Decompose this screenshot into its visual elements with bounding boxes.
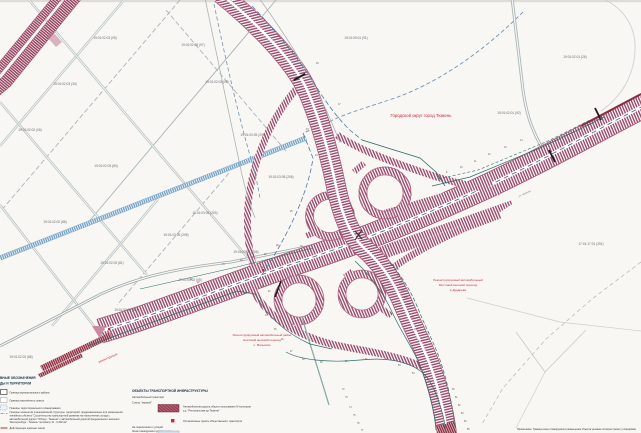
svg-text:19:01:02:02 (06): 19:01:02:02 (06): [18, 128, 41, 132]
svg-text:мостовой высокий переход: мостовой высокий переход: [243, 338, 281, 342]
svg-text:19:01:09:01 (91): 19:01:09:01 (91): [344, 36, 367, 40]
svg-text:Границы элементов планировочно: Границы элементов планировочной структур…: [10, 410, 124, 414]
svg-text:17:01:17:01 (251): 17:01:17:01 (251): [578, 242, 603, 246]
svg-text:19:01:02:03 (84): 19:01:02:03 (84): [94, 164, 117, 168]
svg-text:На пересечении с улицей: На пересечении с улицей: [132, 425, 163, 429]
svg-text:Городской округ город Тюмень: Городской округ город Тюмень: [390, 113, 452, 118]
svg-text:19:01:02:03 (34): 19:01:02:03 (34): [53, 82, 76, 86]
svg-text:Граница муниципального района: Граница муниципального района: [10, 391, 50, 395]
svg-text:Остановочные пункты общественн: Остановочные пункты общественного трансп…: [183, 419, 243, 423]
svg-text:Реконструируемый автомобильный: Реконструируемый автомобильный район: [233, 333, 292, 337]
svg-text:Действующие красные линии: Действующие красные линии: [10, 426, 46, 430]
svg-text:Граница населённого пункта: Граница населённого пункта: [10, 399, 45, 403]
svg-text:ДЫ И ТЕРРИТОРИИ: ДЫ И ТЕРРИТОРИИ: [0, 382, 32, 386]
svg-text:Статус "первый": Статус "первый": [132, 400, 152, 404]
svg-text:автомобильной дороги "Обход г.: автомобильной дороги "Обход г. Тюмени" с…: [10, 417, 120, 421]
svg-text:линейного объекта "Строительст: линейного объекта "Строительство транспо…: [10, 413, 111, 417]
svg-text:19:01:02:01 (92): 19:01:02:01 (92): [497, 111, 520, 115]
svg-text:19:01:02:03 (09): 19:01:02:03 (09): [93, 36, 116, 40]
svg-text:Автомобильный транспорт: Автомобильный транспорт: [132, 395, 165, 399]
svg-text:в Дударева: в Дударева: [450, 288, 466, 292]
svg-text:19:01:02:03 (08): 19:01:02:03 (08): [205, 80, 228, 84]
svg-text:ВНЫЕ ОБОЗНАЧЕНИЯ: ВНЫЕ ОБОЗНАЧЕНИЯ: [0, 376, 36, 380]
svg-text:19:01:02:02 (86): 19:01:02:02 (86): [9, 355, 32, 359]
svg-text:Границы территориального плани: Границы территориального планирования: [10, 406, 62, 410]
svg-text:19:01:02:01 (26): 19:01:02:01 (26): [563, 55, 586, 59]
svg-text:Примечание: Граница зоны плани: Примечание: Граница зоны планируемого ра…: [517, 428, 637, 431]
svg-text:19:01:03:05 (204): 19:01:03:05 (204): [192, 211, 217, 215]
svg-text:19:01:02:03 (85): 19:01:02:03 (85): [114, 308, 137, 312]
svg-text:19:01:03:05 (206): 19:01:03:05 (206): [268, 175, 293, 179]
svg-text:"Екатеринбург - Тюмень" киломе: "Екатеринбург - Тюмень" километр 11 - 3.…: [10, 420, 68, 424]
svg-text:19:01:02:03 (97): 19:01:02:03 (97): [181, 43, 204, 47]
svg-text:19:01:03:05 (205): 19:01:03:05 (205): [163, 233, 188, 237]
svg-text:Реконструируемый автомобильный: Реконструируемый автомобильный: [433, 278, 483, 282]
svg-text:с. Мальково: с. Мальково: [254, 343, 271, 347]
svg-text:19:01:03:05 (206): 19:01:03:05 (206): [233, 250, 258, 254]
svg-text:Автомобильная дорога общего по: Автомобильная дорога общего пользования …: [183, 405, 252, 409]
svg-text:19:01:03:05 (209): 19:01:03:05 (209): [240, 133, 265, 137]
svg-text:19:01:02:03 (81): 19:01:02:03 (81): [100, 261, 123, 265]
svg-text:у.д. "Региональная до Тюмени": у.д. "Региональная до Тюмени": [183, 409, 220, 413]
svg-text:Мостовой высокий переход: Мостовой высокий переход: [439, 283, 478, 287]
svg-text:ОБЪЕКТЫ ТРАНСПОРТНОЙ ИНФРАСТРУ: ОБЪЕКТЫ ТРАНСПОРТНОЙ ИНФРАСТРУКТУРЫ: [132, 389, 208, 393]
svg-text:19:01:02:02 (86): 19:01:02:02 (86): [43, 220, 66, 224]
